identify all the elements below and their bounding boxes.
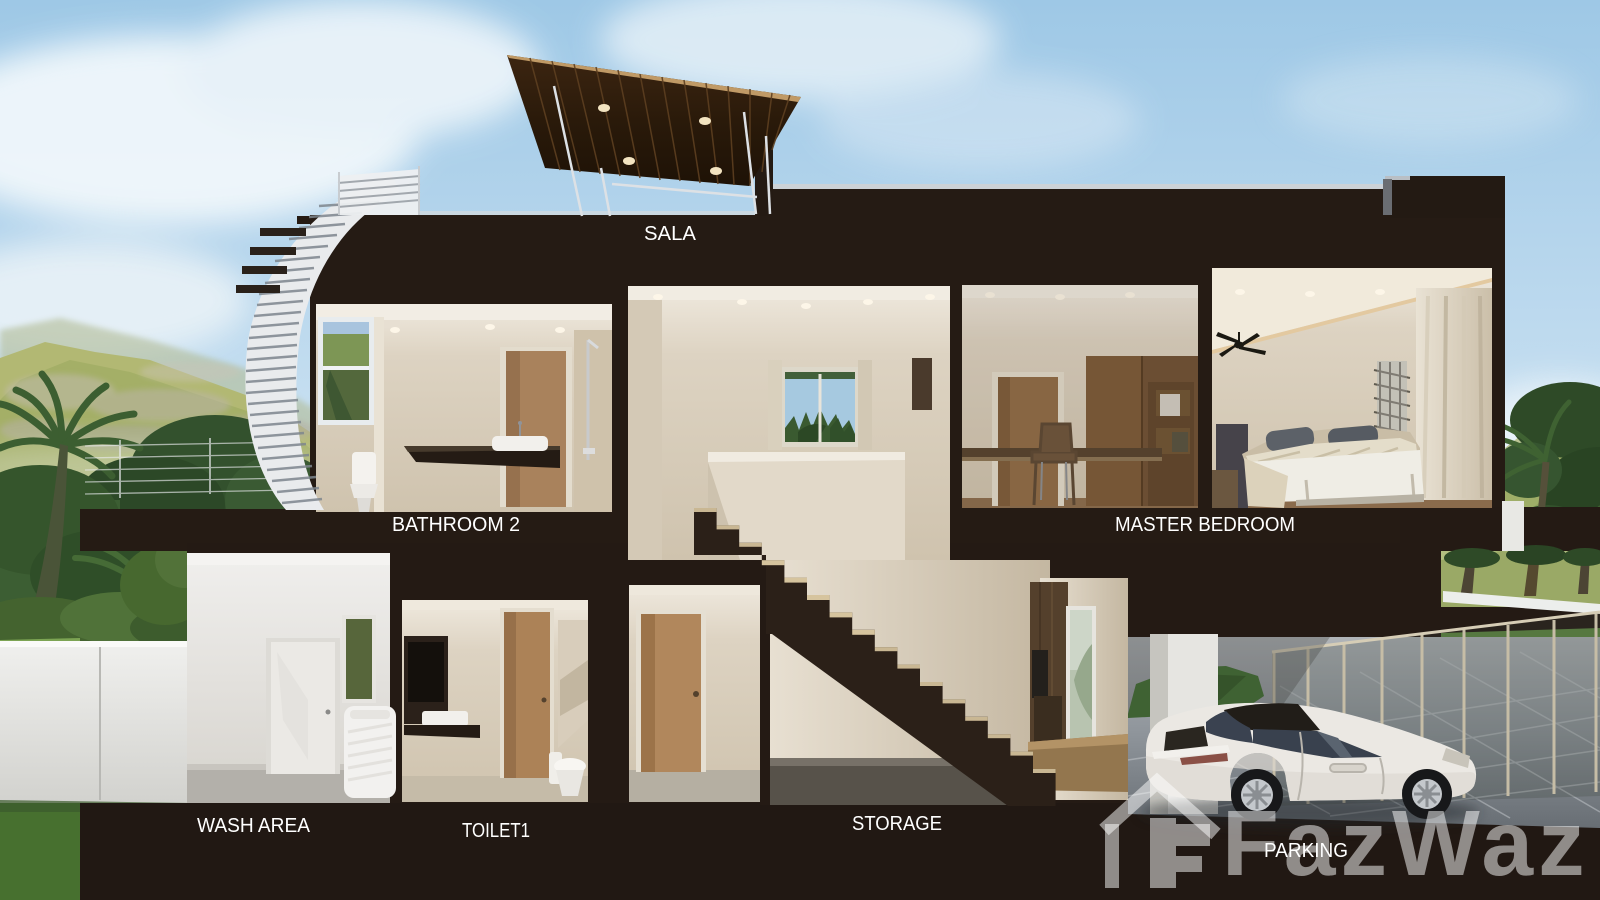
svg-text:STORAGE: STORAGE bbox=[852, 813, 942, 835]
svg-text:WASH AREA: WASH AREA bbox=[197, 815, 311, 837]
svg-text:SALA: SALA bbox=[644, 223, 697, 245]
svg-text:MASTER BEDROOM: MASTER BEDROOM bbox=[1115, 514, 1295, 536]
svg-text:PARKING: PARKING bbox=[1264, 840, 1348, 862]
svg-text:TOILET1: TOILET1 bbox=[462, 820, 530, 842]
svg-text:BATHROOM 2: BATHROOM 2 bbox=[392, 514, 520, 536]
